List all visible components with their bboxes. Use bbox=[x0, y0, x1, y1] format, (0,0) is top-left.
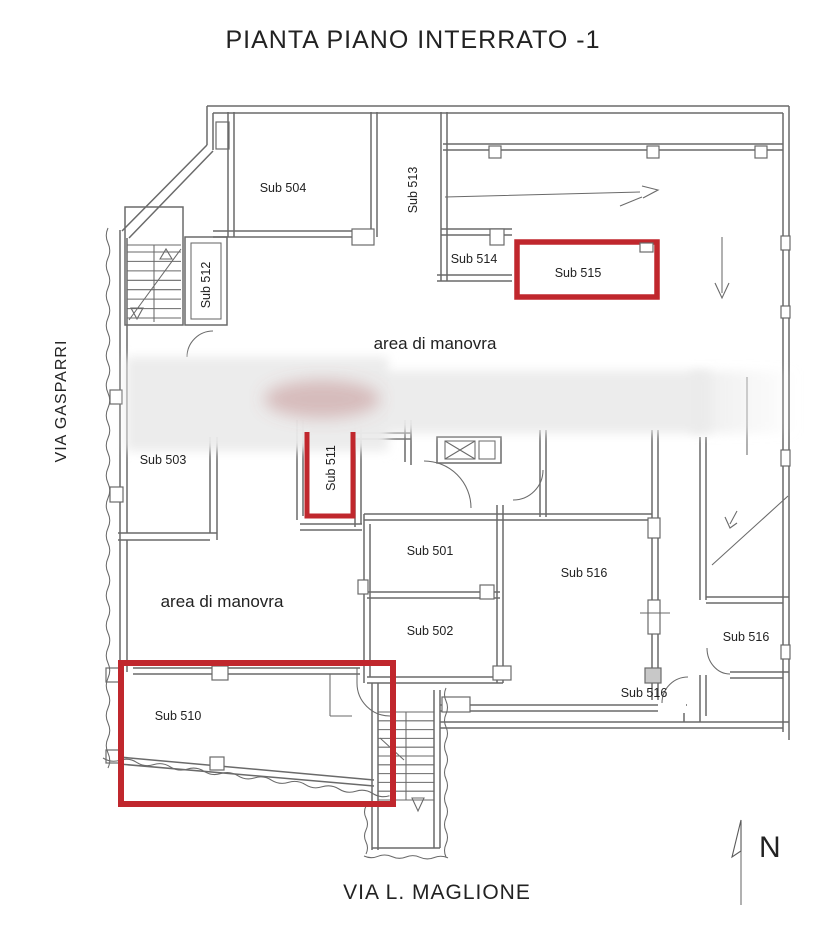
room-label-sub501: Sub 501 bbox=[407, 544, 454, 558]
street-label-west: VIA GASPARRI bbox=[53, 340, 70, 463]
north-arrow: N bbox=[732, 820, 781, 905]
highlight-boxes bbox=[121, 242, 657, 804]
interior-walls-mid bbox=[297, 420, 790, 700]
street-label-south: VIA L. MAGLIONE bbox=[343, 881, 531, 904]
room-label-sub510: Sub 510 bbox=[155, 709, 202, 723]
notch bbox=[640, 243, 653, 252]
room-label-sub512: Sub 512 bbox=[199, 262, 213, 309]
north-label: N bbox=[759, 831, 781, 864]
room-label-sub511: Sub 511 bbox=[324, 445, 338, 491]
room-label-sub516-right: Sub 516 bbox=[723, 630, 770, 644]
room-label-sub516-lower: Sub 516 bbox=[621, 686, 668, 700]
door-arc bbox=[357, 683, 390, 716]
room-label-sub502: Sub 502 bbox=[407, 624, 454, 638]
stairwell-upper bbox=[125, 207, 183, 325]
down-arrow-right bbox=[715, 237, 729, 298]
interior-walls-top bbox=[213, 112, 790, 318]
room-label-sub514: Sub 514 bbox=[451, 252, 498, 266]
floor-plan-page: PIANTA PIANO INTERRATO -1 VIA GASPARRI V… bbox=[0, 0, 822, 942]
room-label-sub503: Sub 503 bbox=[140, 453, 187, 467]
room-label-sub504: Sub 504 bbox=[260, 181, 307, 195]
room-label-sub515: Sub 515 bbox=[555, 266, 602, 280]
red-smudge bbox=[264, 380, 380, 418]
room-label-sub516-main: Sub 516 bbox=[561, 566, 608, 580]
area-label-manovra-upper: area di manovra bbox=[374, 334, 497, 353]
pilaster bbox=[216, 122, 229, 149]
area-label-manovra-lower: area di manovra bbox=[161, 592, 284, 611]
door-arc bbox=[707, 648, 730, 674]
stairwell-lower bbox=[372, 683, 440, 850]
door-arc bbox=[424, 461, 471, 508]
north-arrow-head bbox=[732, 820, 741, 857]
elevator-block bbox=[424, 437, 543, 508]
room-sub510-walls bbox=[106, 666, 390, 770]
highlight-sub510-box bbox=[121, 663, 393, 804]
page-title: PIANTA PIANO INTERRATO -1 bbox=[225, 26, 600, 54]
door-arc bbox=[187, 331, 213, 357]
ramp-arrow-top bbox=[445, 186, 658, 206]
door-arc bbox=[513, 470, 543, 500]
floor-plan-canvas: PIANTA PIANO INTERRATO -1 VIA GASPARRI V… bbox=[0, 0, 822, 942]
room-label-sub513: Sub 513 bbox=[406, 167, 420, 214]
